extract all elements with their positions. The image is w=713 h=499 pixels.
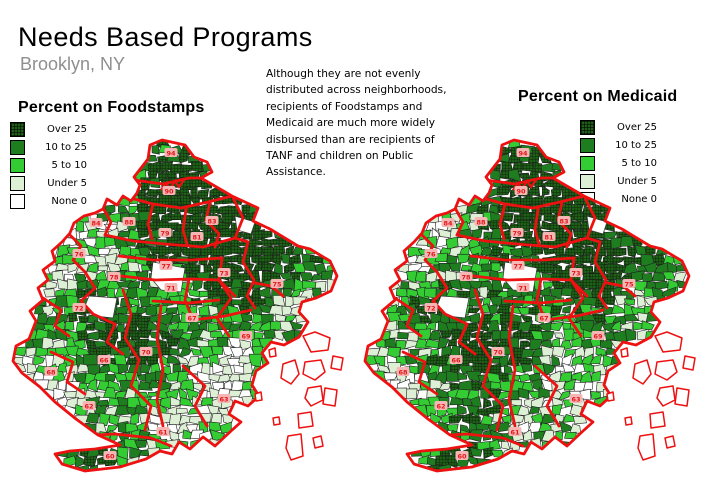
svg-text:70: 70 [493, 349, 503, 357]
precinct-label: 67 [538, 313, 551, 323]
precinct-label: 83 [206, 216, 219, 226]
svg-text:81: 81 [544, 234, 554, 242]
svg-text:88: 88 [124, 219, 134, 227]
page-title: Needs Based Programs [18, 22, 313, 53]
svg-text:63: 63 [219, 396, 228, 404]
precinct-label: 78 [108, 272, 121, 282]
precinct-label: 71 [165, 283, 178, 293]
svg-text:71: 71 [518, 285, 528, 293]
svg-text:94: 94 [166, 150, 176, 158]
legend-swatch [580, 120, 595, 135]
svg-text:69: 69 [241, 333, 251, 341]
svg-text:68: 68 [46, 369, 56, 377]
precinct-label: 61 [509, 427, 522, 437]
legend-label: Over 25 [31, 124, 87, 135]
precinct-label: 70 [492, 347, 505, 357]
svg-text:70: 70 [141, 349, 151, 357]
choropleth-map-foodstamps: 9490848879818375777371767872676970666862… [3, 138, 347, 498]
precinct-label: 72 [425, 303, 438, 313]
precinct-label: 68 [45, 367, 58, 377]
report-canvas: Needs Based Programs Brooklyn, NY Althou… [0, 0, 713, 499]
svg-text:76: 76 [74, 251, 84, 259]
legend-label: Over 25 [601, 122, 657, 133]
svg-text:79: 79 [512, 230, 522, 238]
svg-text:71: 71 [166, 285, 176, 293]
svg-text:88: 88 [476, 219, 486, 227]
svg-text:62: 62 [436, 403, 445, 411]
choropleth-map-medicaid: 9490848879818375777371767872676970666862… [355, 138, 699, 498]
svg-text:61: 61 [158, 429, 168, 437]
precinct-label: 66 [450, 355, 463, 365]
precinct-label: 69 [592, 331, 605, 341]
precinct-label: 79 [511, 228, 524, 238]
precinct-label: 88 [475, 217, 488, 227]
page-subtitle: Brooklyn, NY [20, 54, 125, 75]
map-medicaid: 9490848879818375777371767872676970666862… [355, 138, 699, 498]
precinct-label: 73 [570, 268, 583, 278]
precinct-label: 61 [157, 427, 170, 437]
svg-text:94: 94 [518, 150, 528, 158]
svg-text:62: 62 [84, 403, 93, 411]
svg-text:90: 90 [516, 188, 526, 196]
svg-text:77: 77 [513, 263, 522, 271]
svg-text:63: 63 [571, 396, 580, 404]
jamaica-bay-islands [607, 332, 695, 460]
precinct-label: 90 [163, 186, 176, 196]
precinct-label: 63 [218, 394, 231, 404]
svg-text:66: 66 [451, 357, 461, 365]
precinct-label: 78 [460, 272, 473, 282]
svg-text:75: 75 [272, 281, 282, 289]
svg-text:90: 90 [164, 188, 174, 196]
precinct-label: 79 [159, 228, 172, 238]
precinct-label: 71 [517, 283, 530, 293]
svg-text:84: 84 [91, 220, 101, 228]
precinct-label: 81 [191, 232, 204, 242]
precinct-label: 88 [123, 217, 136, 227]
precinct-label: 66 [98, 355, 111, 365]
svg-text:73: 73 [219, 270, 228, 278]
precinct-label: 77 [160, 261, 173, 271]
precinct-label: 62 [435, 401, 448, 411]
svg-text:67: 67 [539, 315, 548, 323]
precinct-label: 73 [218, 268, 231, 278]
precinct-label: 68 [397, 367, 410, 377]
svg-text:67: 67 [187, 315, 196, 323]
precinct-label: 75 [271, 279, 284, 289]
svg-text:66: 66 [99, 357, 109, 365]
map-title-medicaid: Percent on Medicaid [518, 88, 677, 106]
svg-text:61: 61 [510, 429, 520, 437]
legend-item: Over 25 [10, 120, 87, 138]
svg-text:72: 72 [74, 305, 83, 313]
precinct-label: 81 [543, 232, 556, 242]
svg-text:78: 78 [109, 274, 119, 282]
precinct-label: 69 [240, 331, 253, 341]
precinct-label: 76 [425, 249, 438, 259]
precinct-label: 72 [73, 303, 86, 313]
svg-text:77: 77 [161, 263, 170, 271]
precinct-label: 84 [90, 218, 103, 228]
precinct-label: 75 [623, 279, 636, 289]
svg-text:72: 72 [426, 305, 435, 313]
svg-text:75: 75 [624, 281, 634, 289]
precinct-label: 60 [456, 451, 469, 461]
svg-text:68: 68 [398, 369, 408, 377]
precinct-label: 62 [83, 401, 96, 411]
precinct-label: 94 [165, 148, 178, 158]
precinct-label: 84 [442, 218, 455, 228]
svg-text:81: 81 [192, 234, 202, 242]
map-title-foodstamps: Percent on Foodstamps [18, 99, 204, 117]
svg-text:60: 60 [457, 453, 467, 461]
svg-text:60: 60 [105, 453, 115, 461]
precinct-label: 90 [515, 186, 528, 196]
map-foodstamps: 9490848879818375777371767872676970666862… [3, 138, 347, 498]
jamaica-bay-islands [255, 332, 343, 460]
svg-text:83: 83 [559, 218, 568, 226]
precinct-label: 67 [186, 313, 199, 323]
svg-text:84: 84 [443, 220, 453, 228]
precinct-label: 94 [517, 148, 530, 158]
precinct-label: 60 [104, 451, 117, 461]
precinct-label: 77 [512, 261, 525, 271]
precinct-label: 76 [73, 249, 86, 259]
svg-text:76: 76 [426, 251, 436, 259]
svg-text:78: 78 [461, 274, 471, 282]
svg-text:73: 73 [571, 270, 580, 278]
precinct-label: 70 [140, 347, 153, 357]
svg-text:69: 69 [593, 333, 603, 341]
legend-item: Over 25 [580, 118, 657, 136]
precinct-label: 83 [558, 216, 571, 226]
svg-text:83: 83 [207, 218, 216, 226]
precinct-label: 63 [570, 394, 583, 404]
legend-swatch [10, 122, 25, 137]
svg-text:79: 79 [160, 230, 170, 238]
